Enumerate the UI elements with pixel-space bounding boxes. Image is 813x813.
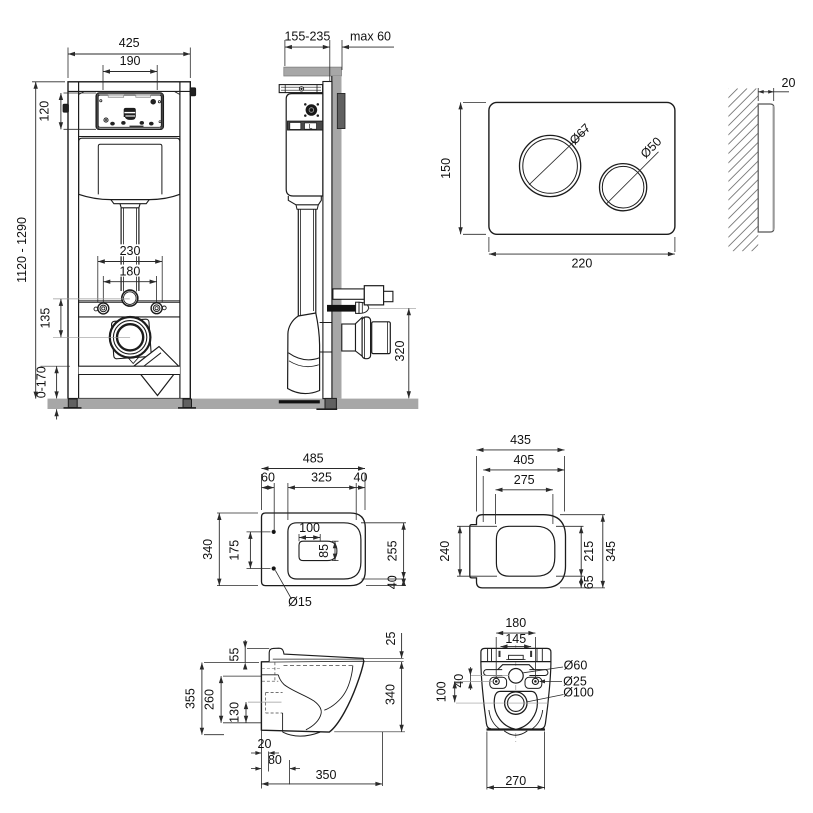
svg-text:270: 270 bbox=[505, 774, 526, 788]
svg-text:175: 175 bbox=[228, 540, 242, 561]
svg-text:230: 230 bbox=[120, 244, 141, 258]
svg-text:260: 260 bbox=[203, 689, 217, 710]
svg-text:275: 275 bbox=[514, 473, 535, 487]
svg-text:355: 355 bbox=[184, 688, 198, 709]
svg-text:180: 180 bbox=[505, 616, 526, 630]
svg-text:80: 80 bbox=[268, 753, 282, 767]
svg-text:60: 60 bbox=[261, 471, 275, 485]
svg-text:485: 485 bbox=[303, 452, 324, 466]
svg-text:135: 135 bbox=[39, 308, 53, 329]
svg-text:405: 405 bbox=[513, 453, 534, 467]
svg-text:145: 145 bbox=[505, 632, 526, 646]
svg-text:40: 40 bbox=[386, 575, 400, 589]
svg-text:20: 20 bbox=[258, 737, 272, 751]
svg-text:130: 130 bbox=[227, 702, 241, 723]
svg-text:40: 40 bbox=[354, 471, 368, 485]
svg-text:55: 55 bbox=[227, 648, 241, 662]
svg-text:Ø15: Ø15 bbox=[288, 595, 312, 609]
svg-text:150: 150 bbox=[439, 158, 453, 179]
svg-text:345: 345 bbox=[604, 541, 618, 562]
svg-text:Ø100: Ø100 bbox=[563, 686, 594, 700]
svg-text:215: 215 bbox=[582, 541, 596, 562]
svg-text:85: 85 bbox=[317, 544, 331, 558]
svg-text:425: 425 bbox=[119, 36, 140, 50]
svg-text:120: 120 bbox=[38, 101, 52, 122]
svg-text:240: 240 bbox=[438, 541, 452, 562]
svg-text:max 60: max 60 bbox=[350, 30, 391, 44]
svg-text:25: 25 bbox=[384, 632, 398, 646]
svg-text:20: 20 bbox=[782, 76, 796, 90]
svg-text:65: 65 bbox=[582, 575, 596, 589]
svg-text:100: 100 bbox=[299, 521, 320, 535]
svg-text:180: 180 bbox=[119, 264, 140, 278]
svg-text:190: 190 bbox=[120, 54, 141, 68]
svg-text:325: 325 bbox=[311, 471, 332, 485]
svg-text:1120 - 1290: 1120 - 1290 bbox=[15, 217, 29, 283]
svg-text:0-170: 0-170 bbox=[34, 366, 48, 398]
svg-text:220: 220 bbox=[571, 257, 592, 271]
svg-text:350: 350 bbox=[316, 768, 337, 782]
svg-text:Ø60: Ø60 bbox=[564, 659, 588, 673]
svg-text:L: L bbox=[309, 123, 313, 130]
svg-text:100: 100 bbox=[434, 681, 448, 702]
svg-text:255: 255 bbox=[386, 540, 400, 561]
svg-text:155-235: 155-235 bbox=[284, 30, 330, 44]
svg-text:340: 340 bbox=[201, 539, 215, 560]
svg-text:340: 340 bbox=[384, 684, 398, 705]
svg-text:320: 320 bbox=[393, 341, 407, 362]
svg-text:435: 435 bbox=[510, 433, 531, 447]
